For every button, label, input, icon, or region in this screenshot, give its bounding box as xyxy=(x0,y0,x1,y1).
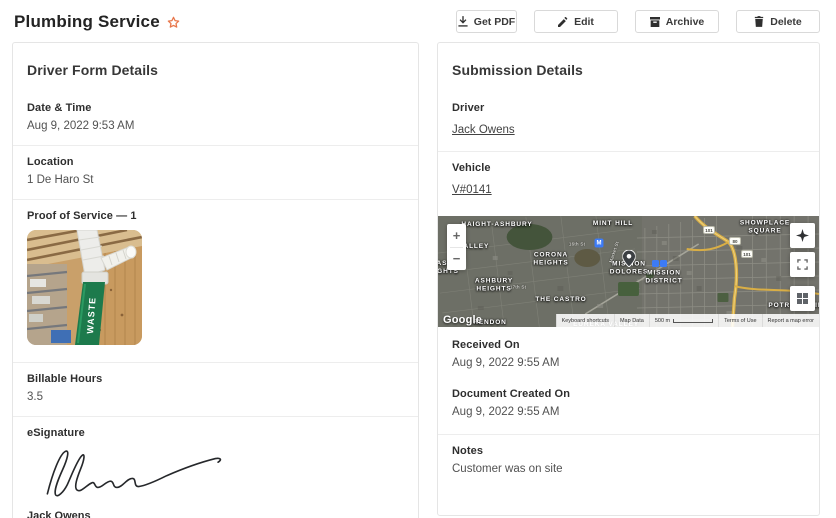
document-created-section: Document Created On Aug 9, 2022 9:55 AM xyxy=(438,382,819,434)
notes-label: Notes xyxy=(452,445,805,457)
notes-section: Notes Customer was on site xyxy=(438,434,819,488)
document-created-value: Aug 9, 2022 9:55 AM xyxy=(452,406,805,418)
google-logo: Google xyxy=(443,314,482,326)
vehicle-section: Vehicle V#0141 xyxy=(438,151,819,214)
location-pin-icon xyxy=(623,250,636,272)
map-fullscreen-button[interactable] xyxy=(790,252,815,277)
proof-of-service-label: Proof of Service — 1 xyxy=(27,210,404,222)
received-on-section: Received On Aug 9, 2022 9:55 AM xyxy=(438,327,819,382)
billable-hours-value: 3.5 xyxy=(27,391,404,403)
billable-hours-section: Billable Hours 3.5 xyxy=(13,362,418,416)
vehicle-link[interactable]: V#0141 xyxy=(452,184,492,196)
driver-form-details-card: Driver Form Details Date & Time Aug 9, 2… xyxy=(12,42,419,518)
edit-button[interactable]: Edit xyxy=(534,10,618,33)
waste-pipe-photo: WASTE xyxy=(27,230,142,345)
driver-link[interactable]: Jack Owens xyxy=(452,124,515,136)
vehicle-label: Vehicle xyxy=(452,162,805,174)
compass-icon xyxy=(796,229,809,242)
get-pdf-button[interactable]: Get PDF xyxy=(456,10,517,33)
favorite-star-icon[interactable] xyxy=(167,16,180,29)
map-data-link[interactable]: Map Data xyxy=(614,314,649,327)
keyboard-shortcuts-link[interactable]: Keyboard shortcuts xyxy=(556,314,614,327)
proof-photo-thumbnail[interactable]: WASTE xyxy=(27,230,142,345)
driver-section: Driver Jack Owens xyxy=(438,92,819,151)
right-card-title: Submission Details xyxy=(438,43,819,92)
location-label: Location xyxy=(27,156,404,168)
fullscreen-icon xyxy=(797,259,808,270)
delete-button[interactable]: Delete xyxy=(736,10,820,33)
scale-bar xyxy=(673,319,713,323)
proof-of-service-section: Proof of Service — 1 xyxy=(13,199,418,362)
map-poi-icons xyxy=(652,260,667,267)
route-shield-101: 101 xyxy=(703,226,715,234)
map-attribution: Google Keyboard shortcuts Map Data 500 m… xyxy=(438,314,819,327)
route-shield-80: 80 xyxy=(729,237,741,245)
location-section: Location 1 De Haro St xyxy=(13,145,418,199)
signer-name: Jack Owens xyxy=(27,510,404,518)
notes-value: Customer was on site xyxy=(452,463,805,475)
route-shield-101: 101 xyxy=(741,250,753,258)
archive-box-icon xyxy=(650,17,660,27)
map-zoom-out-button[interactable]: − xyxy=(447,248,466,271)
received-on-label: Received On xyxy=(452,339,805,351)
header-actions: Get PDF Edit Archive Delete xyxy=(456,10,820,33)
page-title: Plumbing Service xyxy=(14,12,160,32)
map-scale: 500 m xyxy=(649,314,718,327)
map-compass-button[interactable] xyxy=(790,223,815,248)
archive-button[interactable]: Archive xyxy=(635,10,719,33)
map-zoom-control: + − xyxy=(447,224,466,270)
driver-label: Driver xyxy=(452,102,805,114)
muni-metro-icon: M xyxy=(595,239,604,248)
grid-icon xyxy=(797,293,809,305)
document-created-label: Document Created On xyxy=(452,388,805,400)
download-icon xyxy=(458,16,468,27)
location-value: 1 De Haro St xyxy=(27,174,404,186)
report-map-error-link[interactable]: Report a map error xyxy=(762,314,819,327)
date-time-value: Aug 9, 2022 9:53 AM xyxy=(27,120,404,132)
submission-details-card: Submission Details Driver Jack Owens Veh… xyxy=(437,42,820,516)
esignature-section: eSignature Jack Owens Signed Aug 9, 2022… xyxy=(13,416,418,518)
trash-icon xyxy=(754,16,764,27)
esignature-label: eSignature xyxy=(27,427,404,439)
date-time-section: Date & Time Aug 9, 2022 9:53 AM xyxy=(13,92,418,145)
content-columns: Driver Form Details Date & Time Aug 9, 2… xyxy=(0,42,836,518)
terms-of-use-link[interactable]: Terms of Use xyxy=(718,314,761,327)
received-on-value: Aug 9, 2022 9:55 AM xyxy=(452,357,805,369)
map-tiles-button[interactable] xyxy=(790,286,815,311)
pencil-icon xyxy=(558,17,568,27)
page-header: Plumbing Service Get PDF Edit Archive De… xyxy=(0,0,836,42)
signature-image xyxy=(31,445,404,506)
location-map[interactable]: HAIGHT-ASHBURY MINT HILL VALLEY CORONA H… xyxy=(438,216,819,327)
map-zoom-in-button[interactable]: + xyxy=(447,224,466,247)
left-card-title: Driver Form Details xyxy=(13,43,418,92)
date-time-label: Date & Time xyxy=(27,102,404,114)
billable-hours-label: Billable Hours xyxy=(27,373,404,385)
